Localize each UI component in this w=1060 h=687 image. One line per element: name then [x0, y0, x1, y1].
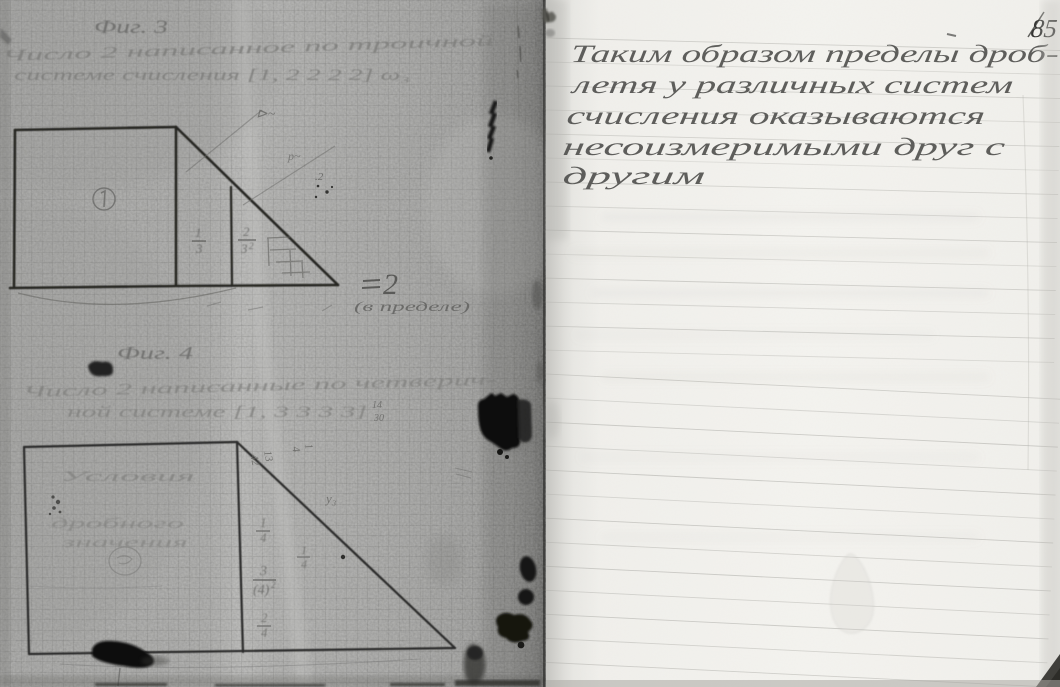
svg-text:несоизмеримыми друг с: несоизмеримыми друг с [561, 134, 1006, 161]
svg-text:30: 30 [373, 413, 384, 424]
svg-text:1: 1 [260, 515, 267, 530]
svg-text:1: 1 [301, 543, 307, 557]
svg-text:Таким образом пределы дроб-: Таким образом пределы дроб- [569, 41, 1060, 68]
svg-text:Фиг. 4: Фиг. 4 [117, 343, 193, 363]
svg-text:4: 4 [260, 530, 267, 545]
svg-text:значения: значения [60, 535, 188, 551]
svg-text:дробного: дробного [51, 516, 185, 532]
svg-text:4: 4 [261, 625, 268, 640]
svg-text:⊳~: ⊳~ [256, 107, 276, 122]
svg-text:2: 2 [243, 224, 250, 239]
svg-text:2: 2 [271, 580, 276, 590]
svg-text:системе счисления [1, 2 2 2 2: системе счисления [1, 2 2 2 2] ω₃ [14, 67, 410, 84]
svg-text:р~: р~ [287, 149, 301, 163]
svg-text:(4): (4) [253, 583, 270, 598]
svg-text:у₃: у₃ [324, 491, 336, 506]
svg-text:1: 1 [195, 225, 202, 240]
svg-text:Условия: Условия [60, 469, 195, 485]
svg-text:летя у различных систем: летя у различных систем [568, 72, 1015, 99]
svg-text:Фиг. 3: Фиг. 3 [94, 17, 168, 38]
svg-text:3: 3 [259, 564, 267, 579]
svg-text:3: 3 [195, 241, 203, 256]
svg-text:(в пределе): (в пределе) [354, 300, 471, 315]
svg-text:2: 2 [249, 241, 254, 251]
svg-text:другим: другим [561, 163, 706, 190]
svg-text:ной системе [1, 3 3 3 3]: ной системе [1, 3 3 3 3] [67, 404, 367, 421]
svg-text:.2: .2 [315, 171, 324, 183]
svg-text:2: 2 [383, 268, 398, 301]
svg-text:2: 2 [261, 610, 268, 625]
svg-text:счисления оказываются: счисления оказываются [565, 103, 986, 130]
svg-text:14: 14 [372, 400, 382, 411]
svg-text:4: 4 [301, 557, 307, 571]
svg-text:3: 3 [240, 241, 248, 256]
